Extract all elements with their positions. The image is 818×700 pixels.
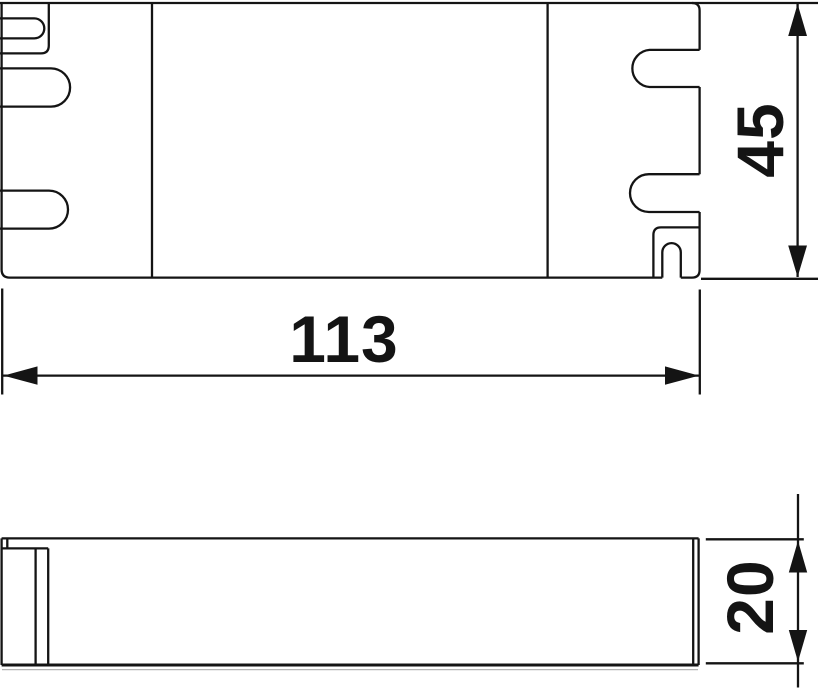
- arrowhead-right-icon: [665, 366, 699, 384]
- dimension-drawing: 45 113 20: [0, 0, 818, 700]
- cable-slot-left-3: [0, 191, 68, 229]
- side-view: [2, 538, 699, 669]
- dimension-length: 113: [2, 289, 700, 395]
- cable-slot-left-2: [0, 68, 70, 106]
- arrowhead-down-icon: [789, 630, 807, 662]
- arrowhead-left-icon: [4, 366, 38, 384]
- arrowhead-up-icon: [788, 4, 807, 36]
- dimension-height: 45: [701, 3, 818, 279]
- cable-slot-right-1: [632, 50, 699, 87]
- top-view: [0, 3, 818, 278]
- top-view-top-right-corner: [692, 3, 700, 50]
- arrowhead-down-icon: [788, 246, 807, 278]
- drawing-canvas: 45 113 20: [0, 0, 818, 700]
- top-view-bottom-right-corner: [681, 212, 700, 278]
- strain-relief-hook-top-left: [0, 3, 49, 53]
- arrowhead-up-icon: [789, 541, 807, 573]
- dimension-length-label: 113: [289, 302, 398, 376]
- dimension-height-label: 45: [723, 102, 797, 177]
- strain-relief-hook-bottom-right: [653, 227, 699, 277]
- top-view-left-bottom-edge: [2, 3, 663, 278]
- dimension-depth-label: 20: [713, 559, 787, 634]
- cable-slot-left-1: [0, 18, 44, 38]
- mounting-slot-bottom-right: [662, 243, 681, 277]
- dimension-depth: 20: [706, 494, 807, 688]
- cable-slot-right-2: [630, 174, 700, 212]
